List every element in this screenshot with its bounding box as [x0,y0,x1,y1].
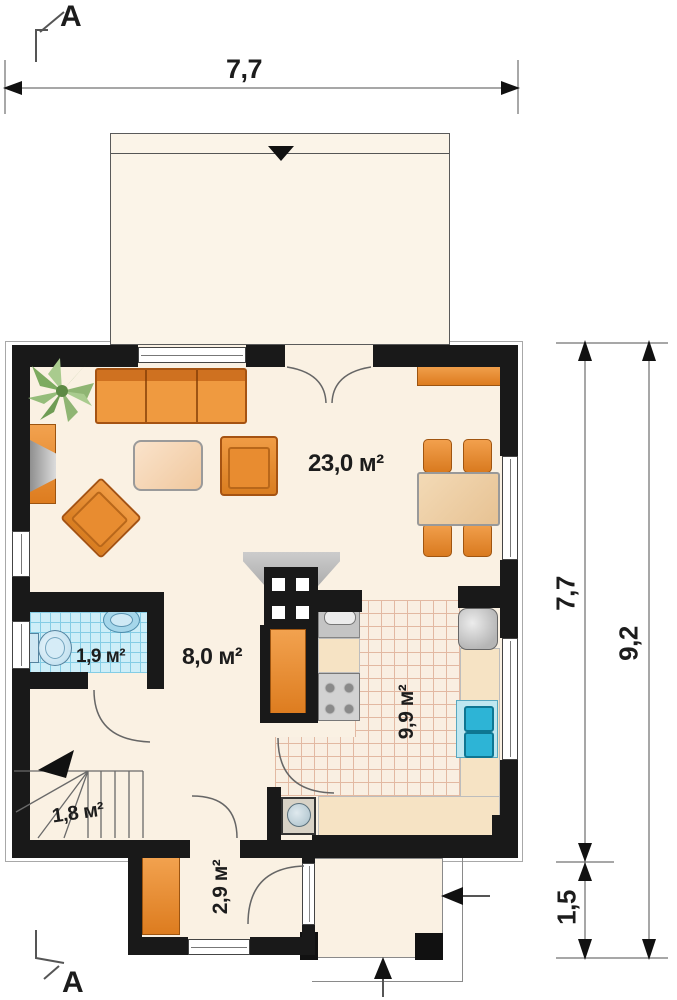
area-label-hall: 8,0 м² [182,643,242,670]
dimension-porch-depth: 1,5 [552,883,583,933]
section-marker-bottom [36,930,64,979]
section-label-top: A [60,0,81,34]
kitchen-door-arc [278,738,334,793]
porch-entry-arrows [374,887,490,997]
dimension-right-height: 7,7 [551,569,582,619]
dimension-top-width: 7,7 [226,54,262,85]
terrace-arrow-icon [268,146,294,161]
dimension-right-total: 9,2 [614,619,645,669]
french-door-arc-left [287,367,326,403]
section-label-bottom: A [62,966,83,1000]
plant-icon [28,358,94,422]
plan-linework [0,0,677,1000]
floor-plan: A A 7,7 7,7 9,2 1,5 23,0 м² 8,0 м² 1,9 м… [0,0,677,1000]
french-door-arc-right [332,367,371,403]
area-label-bathroom: 1,9 м² [76,646,125,668]
stairs-direction-arrow-icon [38,750,74,778]
area-label-kitchen: 9,9 м² [395,677,419,747]
vestibule-hall-door-arc [192,796,237,838]
arrow-right-icon [501,81,520,95]
area-label-vestibule: 2,9 м² [209,852,233,922]
area-label-living: 23,0 м² [308,450,384,478]
entrance-door-arc [248,866,304,924]
bathroom-door-arc [94,690,150,742]
right-dimension-lines [556,343,668,958]
arrow-left-icon [3,81,22,95]
